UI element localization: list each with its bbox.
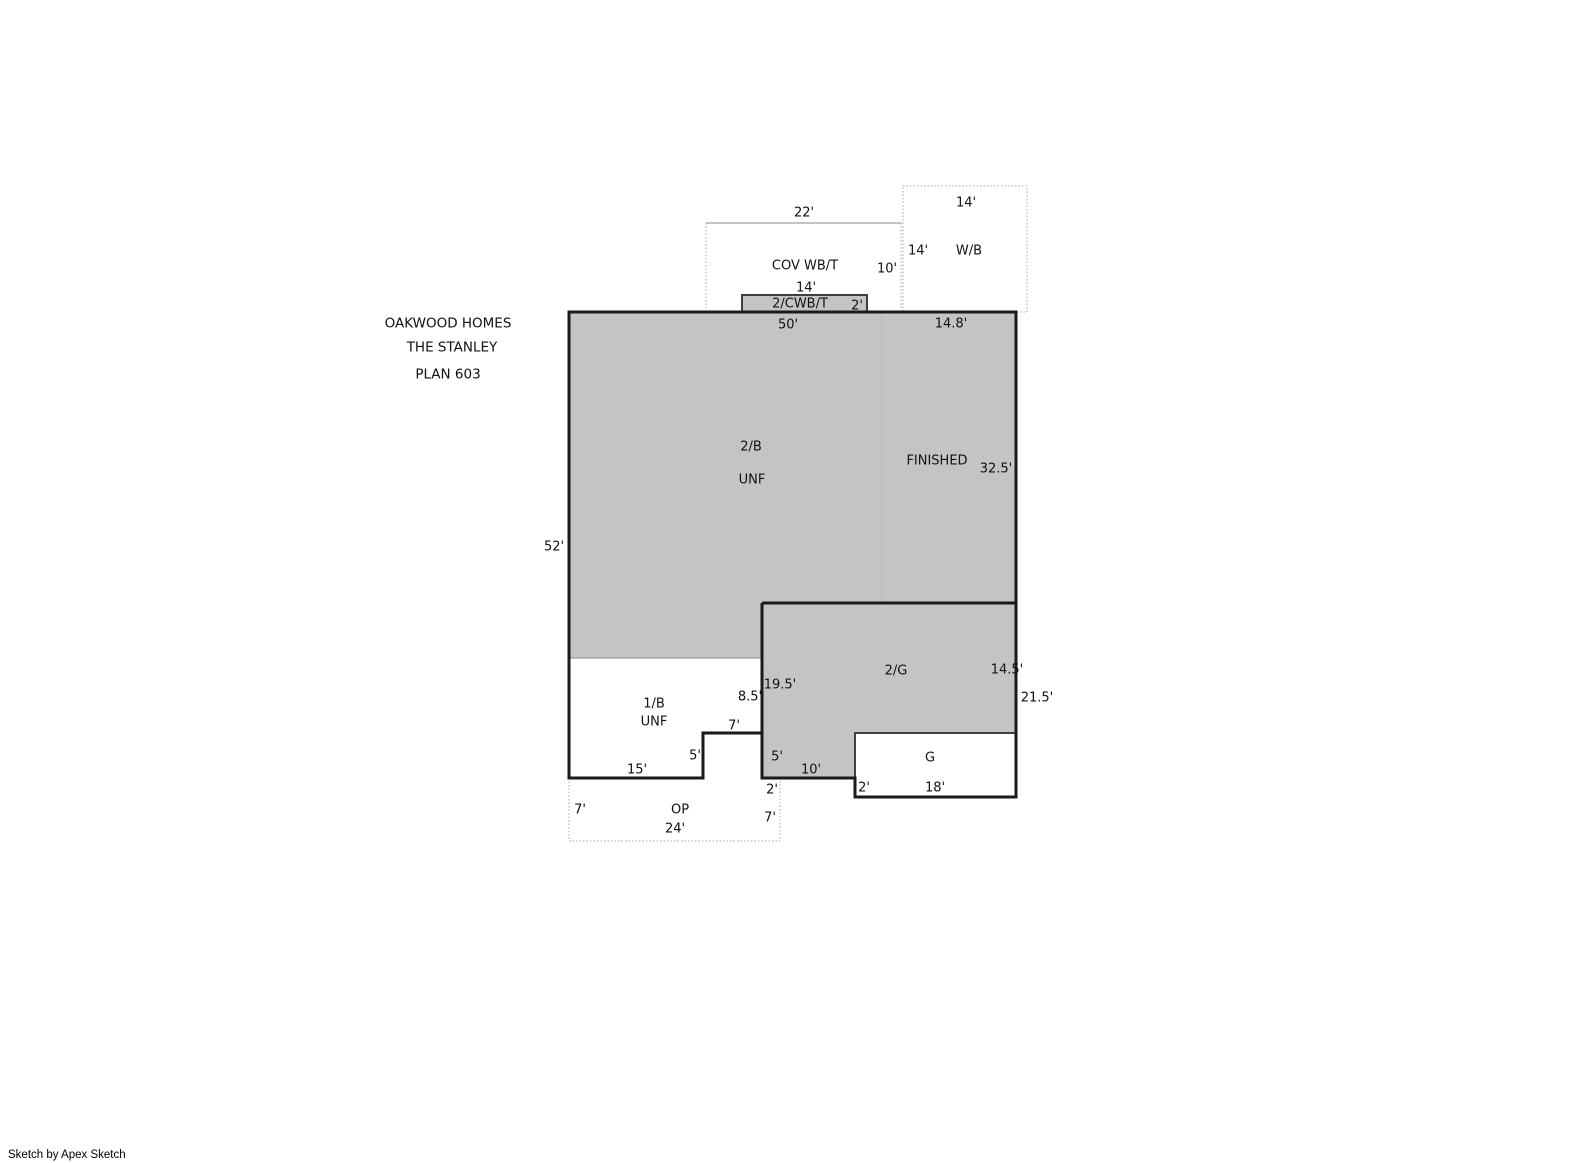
dim-wb-height: 14': [908, 245, 928, 258]
dim-cwbt-depth: 2': [851, 300, 863, 313]
dim-op-left: 7': [574, 804, 586, 817]
dim-1b-step-right: 5': [689, 750, 701, 763]
dim-g-left-lower: 2': [858, 782, 870, 795]
dim-2g-left: 19.5': [764, 679, 797, 692]
dim-left-side: 52': [544, 541, 564, 554]
label-finished: FINISHED: [906, 455, 967, 468]
label-2b: 2/B: [740, 441, 762, 454]
dim-cwbt-width: 14': [796, 282, 816, 295]
label-2b-unf: UNF: [739, 474, 766, 487]
sketch-page: OAKWOOD HOMES THE STANLEY PLAN 603 22'14…: [0, 0, 1585, 1163]
dim-2g-left-lower: 5': [771, 751, 783, 764]
label-1b-unf: UNF: [641, 716, 668, 729]
dim-finished-top: 14.8': [935, 318, 968, 331]
dim-cov-wbt-width: 22': [794, 207, 814, 220]
dim-op-right-offset: 2': [766, 784, 778, 797]
dim-right-lower-total: 21.5': [1021, 692, 1054, 705]
dim-cov-wbt-height: 10': [877, 263, 897, 276]
title-line-1: OAKWOOD HOMES: [385, 317, 512, 331]
dim-wb-width: 14': [956, 197, 976, 210]
dim-2g-right: 14.5': [991, 664, 1024, 677]
label-g: G: [925, 752, 935, 765]
label-cov-wbt: COV WB/T: [772, 260, 838, 273]
dim-1b-step-top: 7': [728, 720, 740, 733]
title-line-3: PLAN 603: [415, 368, 480, 382]
label-1b: 1/B: [643, 698, 665, 711]
dim-1b-right: 8.5': [738, 691, 762, 704]
label-cwbt: 2/CWB/T: [772, 298, 828, 311]
label-2g: 2/G: [885, 665, 908, 678]
dim-op-bottom: 24': [665, 823, 685, 836]
dim-g-bottom: 18': [925, 782, 945, 795]
dim-2g-bottom: 10': [801, 764, 821, 777]
title-line-2: THE STANLEY: [407, 341, 498, 355]
dim-op-right: 7': [764, 812, 776, 825]
dim-1b-bottom: 15': [627, 764, 647, 777]
dim-finished-right: 32.5': [980, 463, 1013, 476]
label-op: OP: [671, 804, 689, 817]
label-wb: W/B: [956, 245, 982, 258]
sketch-credit: Sketch by Apex Sketch: [8, 1149, 126, 1161]
floorplan-canvas: [0, 0, 1585, 1163]
dim-main-top: 50': [778, 319, 798, 332]
